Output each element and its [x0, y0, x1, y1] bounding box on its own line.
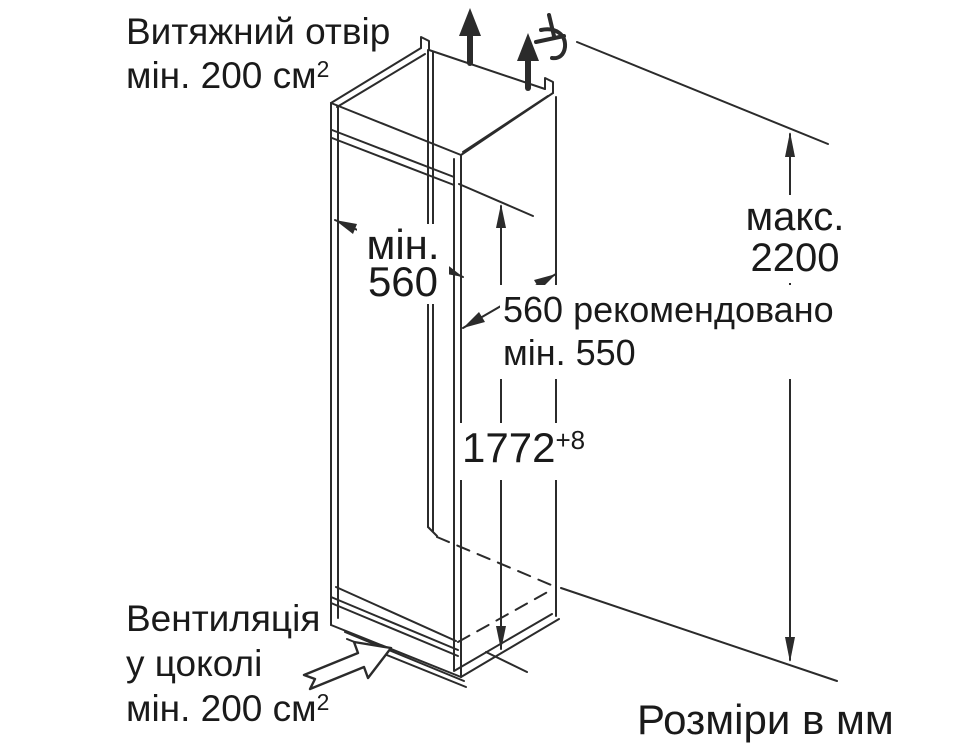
cabinet-front-frame [331, 103, 461, 677]
swirl-tick-2 [536, 36, 564, 42]
plinth-vent-label-line2: у цоколі [126, 641, 329, 686]
niche-depth-label-min: мін. 550 [503, 331, 834, 374]
airflow-swirl-icon [536, 15, 565, 58]
max-height-label-max: макс. [744, 197, 846, 238]
plinth-vent-label-line3: мін. 200 см2 [126, 686, 329, 736]
extension-tick-bottom [486, 652, 527, 672]
plinth-vent-label: Вентиляція у цоколі мін. 200 см2 [126, 596, 329, 736]
installation-diagram-canvas: Витяжний отвір мін. 200 см2 мін. 560 560… [0, 0, 980, 747]
max-height-label-value: 2200 [744, 238, 846, 279]
arrow-head [517, 33, 539, 61]
niche-depth-dimension-label: 560 рекомендовано мін. 550 [500, 285, 840, 379]
exhaust-vent-label-line2: мін. 200 см2 [126, 54, 390, 102]
dim-arrowhead [785, 637, 795, 662]
units-note-text: Розміри в мм [637, 696, 894, 743]
top-back-right-notch [545, 78, 553, 93]
hidden-floor-right-edge [458, 589, 553, 642]
dim-arrowhead [785, 132, 795, 157]
niche-depth-label-recommended: 560 рекомендовано [503, 288, 834, 331]
top-right-edge-inner [463, 96, 548, 152]
swirl-tick-1 [549, 15, 554, 36]
niche-height-tolerance: +8 [555, 425, 585, 455]
niche-height-dimension-label: 1772+8 [458, 423, 591, 480]
exhaust-vent-label-line1: Витяжний отвір [126, 10, 390, 54]
top-reference-line [577, 42, 828, 144]
floor-front-edge [336, 587, 456, 641]
bottom-right-face-edge-inner [454, 614, 552, 671]
bottom-right-face-edge [461, 619, 559, 677]
max-height-dimension-label: макс. 2200 [744, 195, 846, 283]
units-note-label: Розміри в мм [637, 697, 894, 743]
niche-width-dimension-label: мін. 560 [357, 224, 449, 304]
top-front-edge [331, 103, 461, 155]
dim-arrowhead [496, 204, 506, 228]
bottom-rail-bottom [331, 603, 458, 656]
exhaust-vent-label: Витяжний отвір мін. 200 см2 [126, 10, 390, 102]
extension-tick-top [459, 184, 533, 216]
opening-top-inner-edge [332, 130, 454, 177]
niche-height-value: 1772 [462, 424, 555, 471]
plinth-vent-label-line1: Вентиляція [126, 596, 329, 641]
superscript-2: 2 [317, 56, 330, 82]
arrow-head [459, 8, 481, 36]
dim-arrowhead [463, 312, 485, 328]
top-back-left-notch [421, 37, 429, 50]
niche-width-label-value: 560 [357, 263, 449, 300]
superscript-2: 2 [317, 689, 330, 715]
bottom-rail-top [331, 597, 458, 650]
ground-reference-line [561, 588, 837, 681]
airflow-up-arrow-icon [459, 8, 481, 63]
